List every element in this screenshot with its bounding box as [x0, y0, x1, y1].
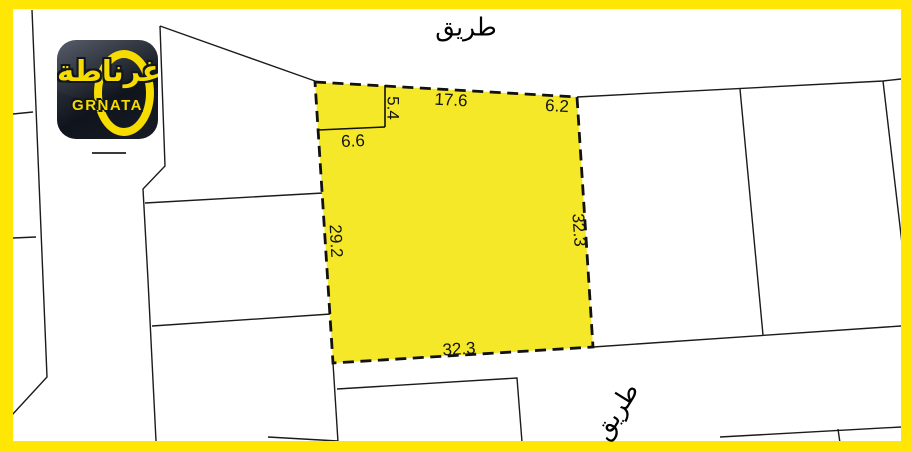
frame-border-bottom — [0, 441, 911, 451]
dimension-notch-width: 6.6 — [341, 132, 365, 150]
road-label-top: طريق — [435, 15, 497, 40]
logo-underline — [92, 152, 126, 154]
dimension-left: 29.2 — [327, 224, 346, 258]
logo-brand-arabic: غرناطة — [57, 54, 158, 88]
cadastral-plot-map: طريق طريق 5.4 6.6 17.6 6.2 29.2 32.3 32.… — [0, 0, 911, 451]
dimension-notch-depth: 5.4 — [385, 96, 402, 120]
parcel-line-left-divider-2 — [13, 237, 36, 238]
highlighted-plot-polygon — [315, 82, 593, 363]
dimension-top-right: 6.2 — [545, 97, 569, 115]
frame-border-right — [901, 0, 911, 451]
dimension-top: 17.6 — [434, 91, 468, 110]
frame-border-top — [0, 0, 911, 9]
dimension-bottom: 32.3 — [442, 340, 476, 359]
grnata-logo: غرناطة GRNATA — [57, 40, 158, 139]
frame-border-left — [0, 0, 13, 451]
logo-brand-latin: GRNATA — [57, 97, 158, 114]
dimension-right: 32.3 — [569, 213, 588, 247]
